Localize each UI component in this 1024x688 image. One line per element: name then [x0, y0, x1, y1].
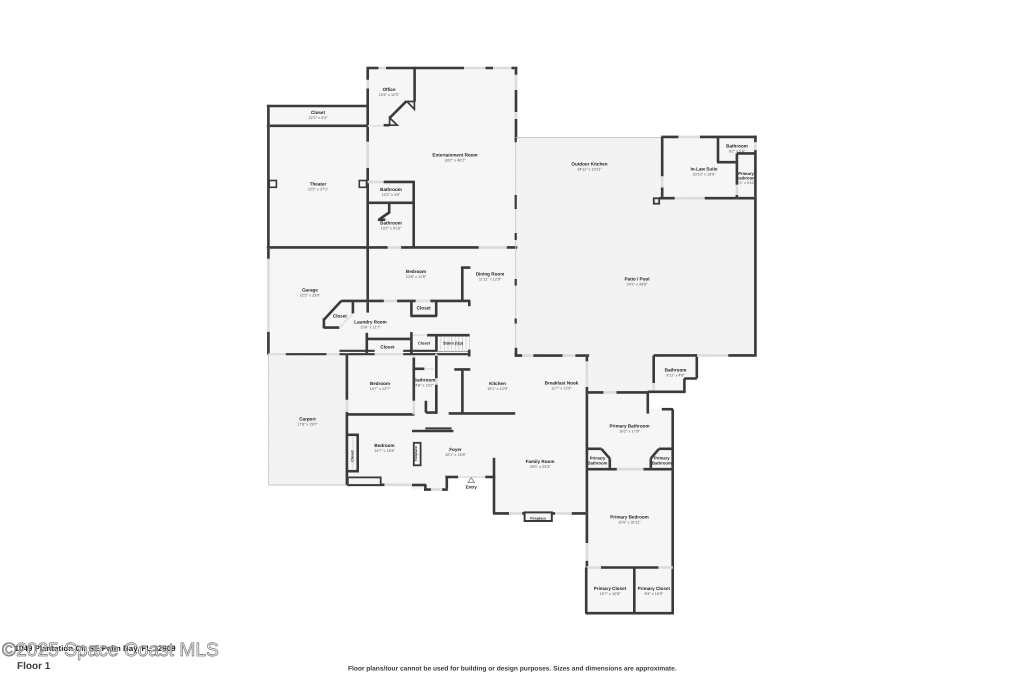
svg-text:Bathroom: Bathroom	[414, 378, 436, 383]
svg-text:Bedroom: Bedroom	[406, 269, 426, 274]
svg-text:In-Law Suite: In-Law Suite	[690, 167, 717, 172]
svg-text:Primary Bathroom: Primary Bathroom	[609, 424, 649, 429]
svg-text:Bathroom: Bathroom	[380, 187, 402, 192]
svg-text:8'4" x 10'9": 8'4" x 10'9"	[644, 592, 663, 596]
svg-text:10'2" x 4'6": 10'2" x 4'6"	[382, 193, 401, 197]
svg-text:Bedroom: Bedroom	[370, 381, 390, 386]
svg-text:Carport: Carport	[299, 417, 316, 422]
svg-text:Bathroom: Bathroom	[588, 460, 608, 465]
svg-text:Primary Closet: Primary Closet	[638, 586, 671, 591]
svg-text:Closet: Closet	[380, 344, 395, 349]
svg-text:Dining Room: Dining Room	[476, 272, 505, 277]
svg-text:Office: Office	[382, 87, 395, 92]
svg-text:22'2" x 27'1": 22'2" x 27'1"	[308, 188, 329, 192]
svg-text:Bathroom: Bathroom	[665, 368, 687, 373]
svg-text:54'1" x 43'8": 54'1" x 43'8"	[627, 283, 648, 287]
svg-text:10'4" x 12'5": 10'4" x 12'5"	[379, 93, 400, 97]
svg-text:22'8" x 11'8": 22'8" x 11'8"	[406, 275, 427, 279]
svg-text:©2025 Space Coast MLS: ©2025 Space Coast MLS	[2, 640, 219, 661]
svg-text:Bathroom: Bathroom	[736, 176, 756, 181]
svg-text:Bathroom: Bathroom	[380, 221, 402, 226]
svg-text:16'2" x 17'8": 16'2" x 17'8"	[619, 430, 640, 434]
svg-text:15'6" x 11'7": 15'6" x 11'7"	[360, 326, 381, 330]
svg-text:Floor 1: Floor 1	[17, 661, 51, 672]
svg-text:Entry: Entry	[466, 485, 478, 490]
svg-text:Closet: Closet	[333, 314, 348, 319]
svg-text:Breakfast Nook: Breakfast Nook	[545, 381, 579, 386]
svg-text:Primary Bedroom: Primary Bedroom	[610, 515, 649, 520]
svg-text:Closet: Closet	[417, 306, 432, 311]
svg-text:34'11" x 10'11": 34'11" x 10'11"	[577, 168, 602, 172]
svg-text:4'8" x 13'2": 4'8" x 13'2"	[415, 384, 434, 388]
svg-text:9'11" x 4'8": 9'11" x 4'8"	[666, 374, 685, 378]
svg-text:20'10" x 13'9": 20'10" x 13'9"	[693, 173, 717, 177]
svg-text:Patio / Pool: Patio / Pool	[624, 277, 649, 282]
svg-text:14'7" x 12'7": 14'7" x 12'7"	[370, 387, 391, 391]
svg-text:22'2" x 4'4": 22'2" x 4'4"	[309, 116, 328, 120]
svg-text:Bathroom: Bathroom	[652, 460, 672, 465]
svg-text:33'2" x 40'2": 33'2" x 40'2"	[445, 159, 466, 163]
svg-text:Theater: Theater	[310, 182, 327, 187]
svg-text:Laundry Room: Laundry Room	[354, 320, 386, 325]
svg-text:14'7" x 18'4": 14'7" x 18'4"	[374, 449, 395, 453]
svg-text:Family Room: Family Room	[526, 459, 555, 464]
svg-text:15'6" x 31'11": 15'6" x 31'11"	[618, 521, 641, 525]
svg-text:16'1" x 12'9": 16'1" x 12'9"	[487, 387, 508, 391]
svg-text:Closet: Closet	[311, 110, 326, 115]
svg-text:Garage: Garage	[302, 288, 318, 293]
svg-text:29'5" x 23'3": 29'5" x 23'3"	[530, 465, 551, 469]
svg-text:Stairs (Up): Stairs (Up)	[443, 341, 464, 346]
svg-text:16'7" x 10'8": 16'7" x 10'8"	[600, 592, 621, 596]
svg-text:11'7" x 12'9": 11'7" x 12'9"	[551, 387, 572, 391]
svg-text:Entertainment Room: Entertainment Room	[432, 153, 477, 158]
svg-text:17'8" x 29'7": 17'8" x 29'7"	[297, 423, 318, 427]
svg-text:Fireplace: Fireplace	[414, 446, 418, 461]
svg-text:Outdoor Kitchen: Outdoor Kitchen	[571, 162, 607, 167]
svg-text:Fireplace: Fireplace	[530, 516, 546, 520]
svg-text:22'2" x 23'9": 22'2" x 23'9"	[300, 294, 321, 298]
svg-text:Kitchen: Kitchen	[489, 381, 506, 386]
svg-text:11'11" x 12'8": 11'11" x 12'8"	[479, 278, 502, 282]
svg-text:Closet: Closet	[351, 449, 355, 461]
svg-text:Foyer: Foyer	[449, 447, 462, 452]
svg-text:16'1" x 16'8": 16'1" x 16'8"	[445, 453, 466, 457]
svg-text:Primary Closet: Primary Closet	[594, 586, 627, 591]
svg-text:Floor plans/tour cannot be use: Floor plans/tour cannot be used for buil…	[348, 665, 677, 672]
svg-text:10'2" x 9'10": 10'2" x 9'10"	[381, 227, 402, 231]
svg-text:Closet: Closet	[418, 341, 431, 346]
svg-text:4'1" x 9'10": 4'1" x 9'10"	[737, 181, 755, 185]
svg-text:Bedroom: Bedroom	[374, 443, 394, 448]
svg-text:Bathroom: Bathroom	[726, 144, 748, 149]
